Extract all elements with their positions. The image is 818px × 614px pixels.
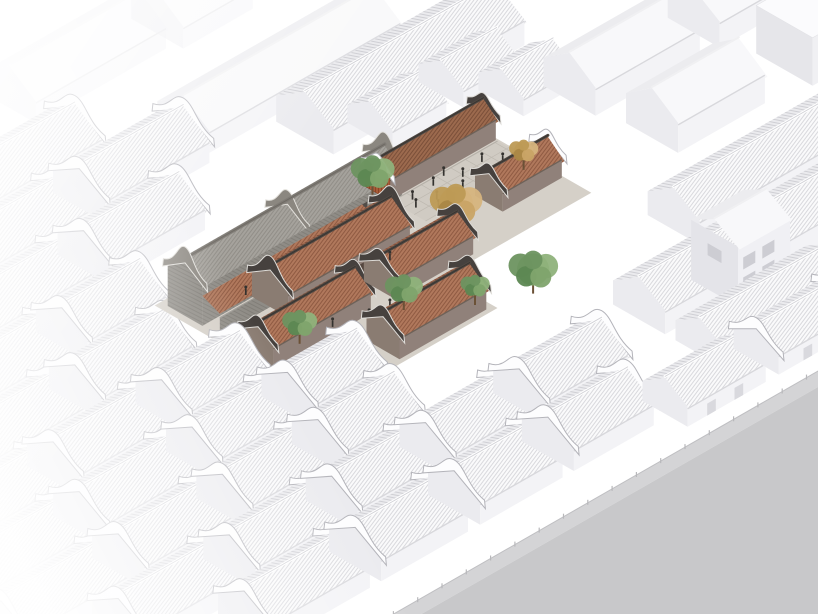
corner-fade (0, 0, 818, 614)
architectural-axonometric-rendering (0, 0, 818, 614)
site-rendering-canvas (0, 0, 818, 614)
